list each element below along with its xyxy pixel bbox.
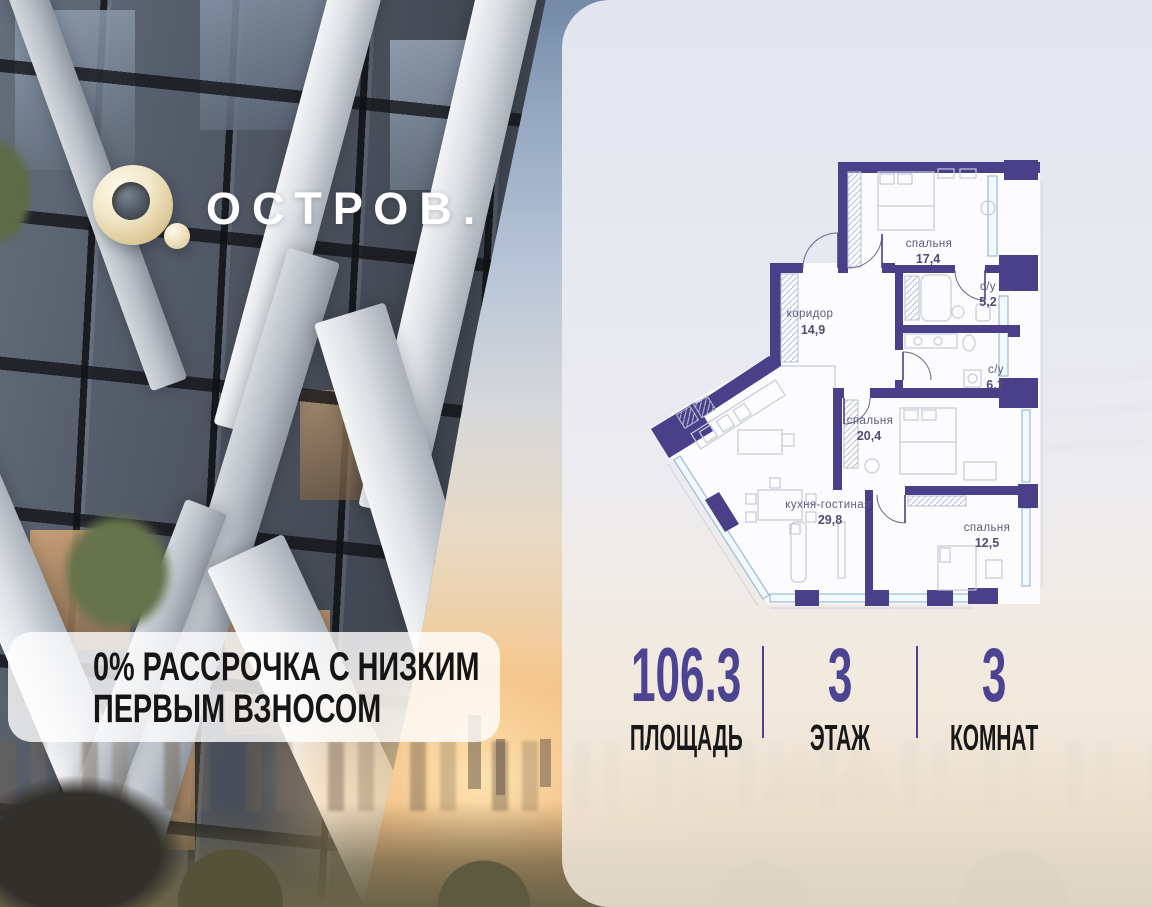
room-label-bedroom-17: спальня: [906, 238, 952, 250]
donut-o-icon: [93, 165, 173, 245]
room-label-bedroom-12: спальня: [964, 522, 1010, 534]
room-label-corridor: коридор: [787, 308, 834, 320]
room-label-bath-52: с/у: [980, 281, 996, 293]
room-area-bedroom-20: 20,4: [857, 429, 881, 443]
brand-wordmark: ОСТРОВ.: [206, 183, 486, 235]
balcony-plant: [60, 510, 175, 635]
room-area-kitchen: 29,8: [818, 513, 842, 527]
room-area-corridor: 14,9: [801, 323, 825, 337]
floor-plan: спальня 17,4 с/у 5,2 коридор 14,9 с/у 6,…: [648, 138, 1056, 624]
promo-text: 0% РАССРОЧКА С НИЗКИМ ПЕРВЫМ ВЗНОСОМ: [93, 646, 479, 730]
stat-area-label: ПЛОЩАДЬ: [630, 720, 743, 756]
room-label-kitchen: кухня-гостиная: [785, 499, 870, 511]
room-area-bath-52: 5,2: [979, 295, 996, 309]
room-label-bedroom-20: спальня: [847, 415, 893, 427]
promo-page: ОСТРОВ. 0% РАССРОЧКА С НИЗКИМ ПЕРВЫМ ВЗН…: [0, 0, 1152, 907]
stat-area-value: 106.3: [631, 640, 741, 712]
room-label-bath-61: с/у: [988, 364, 1004, 376]
logo-dot-icon: [164, 223, 190, 249]
stat-rooms-label: КОМНАТ: [950, 720, 1038, 756]
stat-rooms: 3 КОМНАТ: [918, 640, 1070, 756]
stat-floor-value: 3: [828, 640, 853, 712]
donut-hole: [112, 182, 150, 220]
skyline-tower: [496, 739, 505, 795]
room-area-bedroom-17: 17,4: [916, 252, 940, 266]
promo-line-2: ПЕРВЫМ ВЗНОСОМ: [93, 688, 479, 730]
room-area-bath-61: 6,1: [986, 378, 1003, 392]
stat-floor: 3 ЭТАЖ: [764, 640, 916, 756]
foreground-tree: [0, 772, 190, 907]
stat-area: 106.3 ПЛОЩАДЬ: [610, 640, 762, 756]
promo-line-1: 0% РАССРОЧКА С НИЗКИМ: [93, 646, 479, 688]
promo-banner: 0% РАССРОЧКА С НИЗКИМ ПЕРВЫМ ВЗНОСОМ: [8, 632, 500, 742]
stats-row: 106.3 ПЛОЩАДЬ 3 ЭТАЖ 3 КОМНАТ: [610, 640, 1070, 756]
skyline-tower: [540, 739, 551, 787]
stat-rooms-value: 3: [982, 640, 1007, 712]
stat-floor-label: ЭТАЖ: [810, 720, 870, 756]
room-area-bedroom-12: 12,5: [975, 536, 999, 550]
